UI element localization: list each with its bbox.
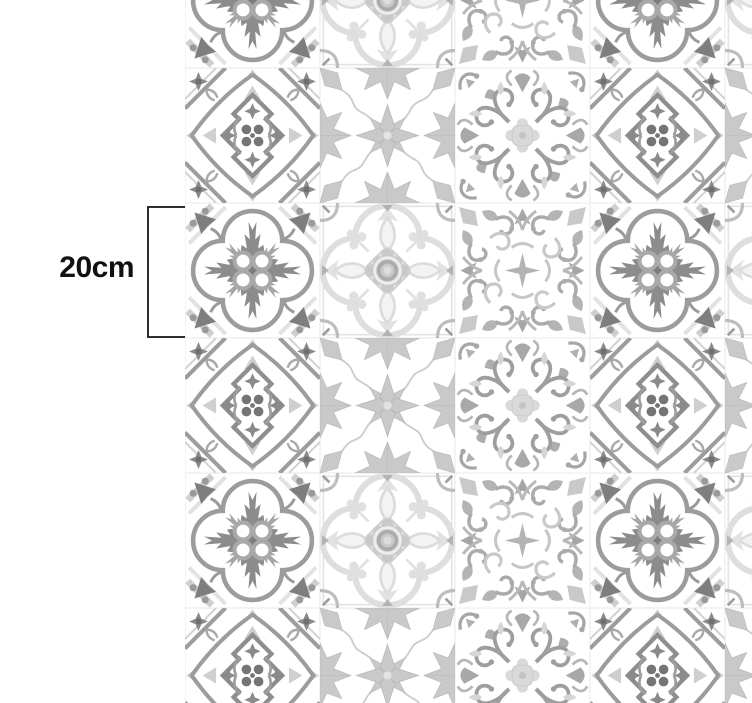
tile-peony-quatrefoil-tile <box>590 203 725 338</box>
tile-diamond-medallion-tile <box>590 68 725 203</box>
tile-diamond-medallion-tile <box>590 338 725 473</box>
tile-light-quatrefoil-tile <box>725 203 752 338</box>
tile-star-tile <box>320 608 455 703</box>
tile-peony-quatrefoil-tile <box>185 473 320 608</box>
tile-diamond-medallion-tile <box>590 608 725 703</box>
tile-peony-quatrefoil-tile <box>590 0 725 68</box>
tile-diamond-medallion-tile <box>185 338 320 473</box>
dimension-bracket <box>147 206 186 338</box>
tile-filigree-rosette-tile <box>455 338 590 473</box>
tile-filigree-rosette-tile <box>455 68 590 203</box>
tile-light-quatrefoil-tile <box>725 473 752 608</box>
tile-filigree-cross-tile <box>455 203 590 338</box>
tile-diamond-medallion-tile <box>185 68 320 203</box>
dimension-label: 20cm <box>30 251 134 285</box>
tile-light-quatrefoil-tile <box>320 0 455 68</box>
tile-filigree-cross-tile <box>455 473 590 608</box>
tile-star-tile <box>320 68 455 203</box>
tile-star-tile <box>320 338 455 473</box>
tile-star-tile <box>725 68 752 203</box>
tile-peony-quatrefoil-tile <box>185 0 320 68</box>
tile-peony-quatrefoil-tile <box>185 203 320 338</box>
tile-star-tile <box>725 338 752 473</box>
tile-light-quatrefoil-tile <box>725 0 752 68</box>
tile-filigree-rosette-tile <box>455 608 590 703</box>
tile-filigree-cross-tile <box>455 0 590 68</box>
product-image: 20cm <box>0 0 752 703</box>
tile-light-quatrefoil-tile <box>320 473 455 608</box>
tile-grid <box>185 0 752 703</box>
tile-star-tile <box>725 608 752 703</box>
tile-pattern-area <box>185 0 752 703</box>
tile-diamond-medallion-tile <box>185 608 320 703</box>
tile-light-quatrefoil-tile <box>320 203 455 338</box>
tile-peony-quatrefoil-tile <box>590 473 725 608</box>
